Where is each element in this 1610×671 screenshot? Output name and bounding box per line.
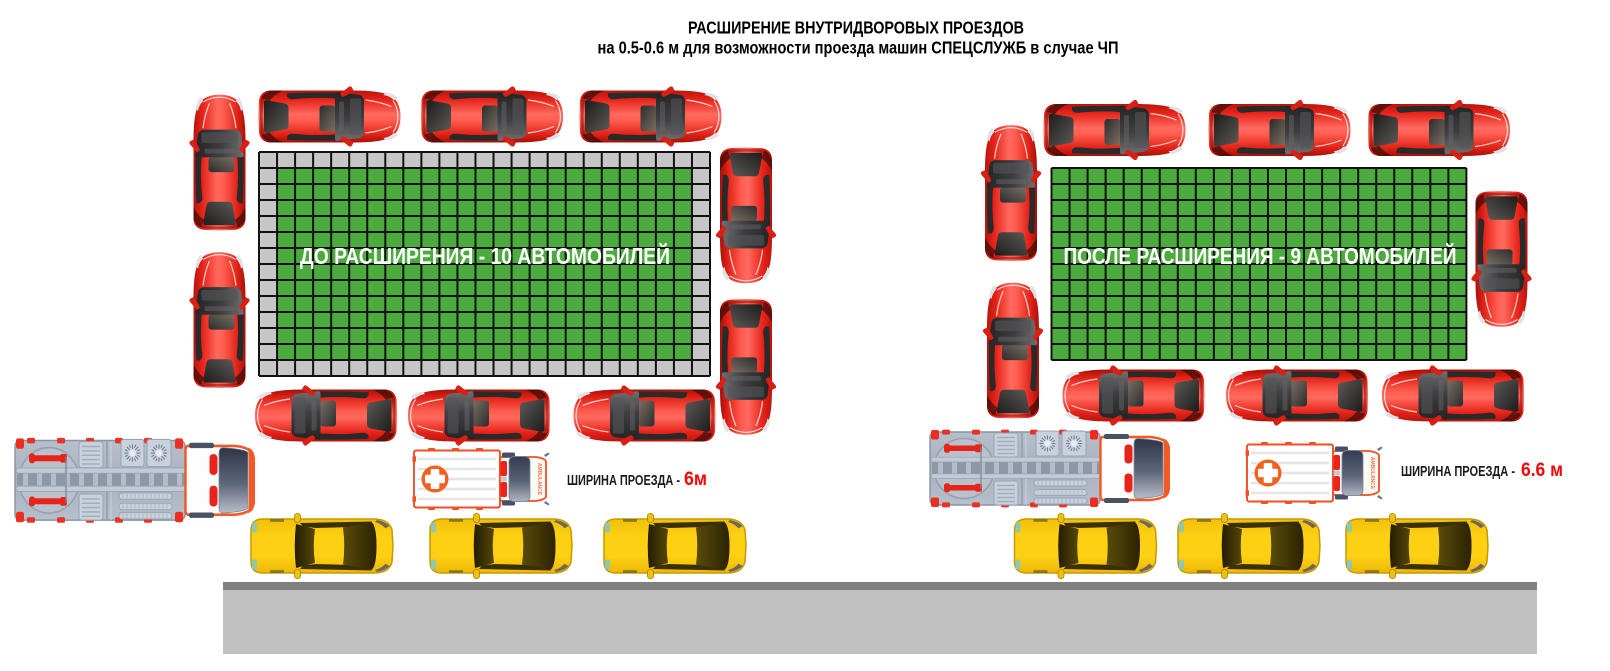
svg-text:ПОСЛЕ РАСШИРЕНИЯ - 9 АВТОМОБИЛ: ПОСЛЕ РАСШИРЕНИЯ - 9 АВТОМОБИЛЕЙ <box>1064 242 1457 269</box>
svg-text:ДО РАСШИРЕНИЯ - 10 АВТОМОБИЛЕЙ: ДО РАСШИРЕНИЯ - 10 АВТОМОБИЛЕЙ <box>300 242 670 269</box>
svg-text:ШИРИНА ПРОЕЗДА -: ШИРИНА ПРОЕЗДА - <box>1401 464 1515 480</box>
svg-text:ШИРИНА ПРОЕЗДА -: ШИРИНА ПРОЕЗДА - <box>567 473 680 489</box>
svg-text:6м: 6м <box>684 469 707 490</box>
svg-text:РАСШИРЕНИЕ ВНУТРИДВОРОВЫХ ПРОЕ: РАСШИРЕНИЕ ВНУТРИДВОРОВЫХ ПРОЕЗДОВ <box>688 18 1024 38</box>
svg-text:на 0.5-0.6 м для возможности п: на 0.5-0.6 м для возможности проезда маш… <box>598 38 1119 58</box>
svg-text:6.6 м: 6.6 м <box>1521 460 1563 481</box>
